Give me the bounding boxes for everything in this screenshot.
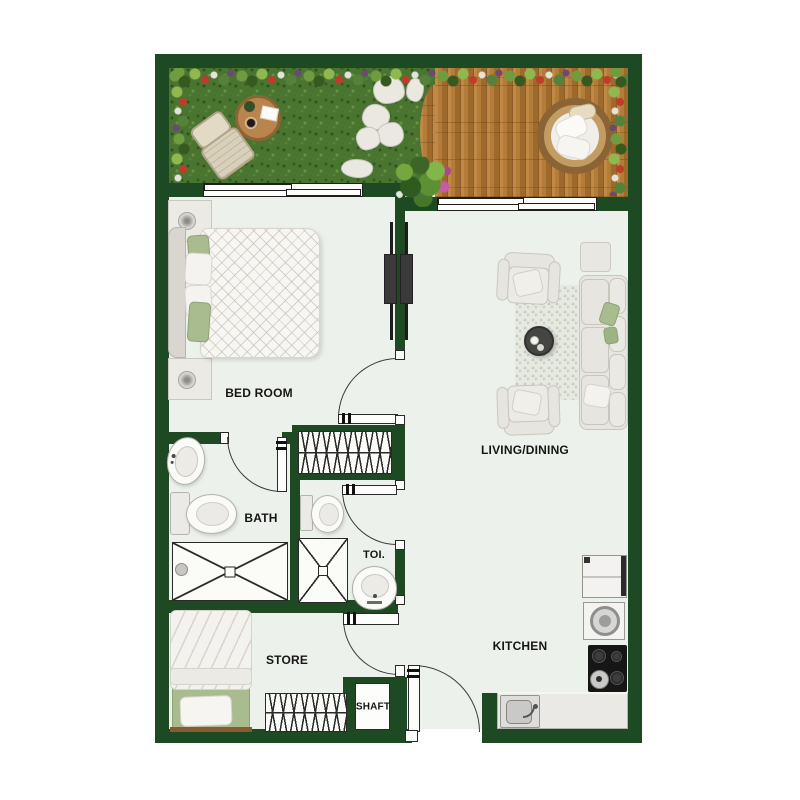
living-window bbox=[437, 197, 597, 211]
coffee-table-cup bbox=[537, 344, 544, 351]
nightstand bbox=[168, 358, 212, 400]
wall-cap bbox=[395, 540, 405, 550]
door-hinge-tick bbox=[346, 484, 349, 495]
sink-tap bbox=[373, 594, 377, 598]
wall-outer-left bbox=[155, 54, 169, 743]
store-bed bbox=[170, 610, 252, 732]
bath-shower-tray bbox=[172, 542, 288, 601]
double-bed-duvet bbox=[200, 228, 320, 358]
store-door-leaf bbox=[343, 613, 399, 625]
flower-border-top bbox=[169, 66, 628, 88]
armchair bbox=[496, 251, 562, 309]
wall-outer-top bbox=[155, 54, 642, 68]
door-hinge-tick bbox=[353, 612, 356, 625]
coffee-table bbox=[524, 326, 554, 356]
toi-toilet-bowl bbox=[311, 495, 344, 533]
shower-drain bbox=[225, 566, 236, 577]
sink-tap bbox=[367, 601, 382, 604]
refrigerator-divider bbox=[583, 576, 621, 578]
burner bbox=[611, 651, 622, 662]
wall-cap bbox=[395, 415, 405, 425]
stepping-stone bbox=[377, 122, 404, 147]
bath-door-leaf bbox=[277, 437, 287, 492]
door-hinge-tick bbox=[352, 484, 355, 495]
toi-shower-tray bbox=[298, 538, 348, 603]
sofa bbox=[579, 275, 628, 430]
store-bed-base bbox=[170, 727, 252, 732]
store-wardrobe bbox=[265, 693, 347, 732]
side-table bbox=[580, 242, 611, 272]
refrigerator-handle bbox=[621, 556, 626, 596]
bath-toilet-bowl bbox=[186, 494, 237, 534]
armchair-arm bbox=[547, 385, 560, 427]
refrigerator-hinge bbox=[584, 557, 590, 563]
door-hinge-tick bbox=[407, 669, 420, 672]
wall-cap bbox=[405, 730, 418, 742]
sliding-panel bbox=[400, 254, 413, 304]
cooktop bbox=[588, 645, 627, 692]
door-hinge-tick bbox=[347, 612, 350, 625]
wall-cap bbox=[395, 665, 405, 677]
room-label-bedroom: BED ROOM bbox=[225, 386, 293, 400]
basket-chair bbox=[537, 98, 613, 174]
room-label-kitchen: KITCHEN bbox=[493, 639, 548, 653]
basin-bowl bbox=[173, 444, 201, 478]
bed-pillow-white bbox=[184, 252, 213, 285]
room-label-bath: BATH bbox=[244, 511, 277, 525]
kettle bbox=[590, 670, 609, 689]
store-bed-fold bbox=[170, 668, 252, 685]
wall-cap bbox=[395, 595, 405, 605]
bedroom-door-leaf bbox=[338, 414, 398, 424]
table-lamp bbox=[178, 371, 196, 389]
sliding-panel bbox=[384, 254, 397, 304]
sofa-back-cushion bbox=[609, 392, 626, 427]
bedroom-window bbox=[203, 183, 363, 197]
armchair-arm bbox=[547, 261, 561, 304]
bed-pillow-green bbox=[187, 301, 212, 342]
refrigerator bbox=[582, 555, 627, 598]
window-sash bbox=[204, 184, 292, 191]
basin-tap bbox=[170, 461, 173, 464]
shower-head bbox=[175, 563, 188, 576]
toilet-door-leaf bbox=[342, 485, 397, 495]
garden-table-bowl bbox=[244, 101, 255, 112]
wall-garden-divider bbox=[169, 183, 203, 197]
door-hinge-tick bbox=[276, 447, 287, 450]
entrance-door-leaf bbox=[408, 665, 420, 732]
washing-machine bbox=[583, 602, 625, 640]
garden-table-cup bbox=[247, 119, 255, 127]
wall-kitchen-stub bbox=[482, 693, 497, 730]
door-hinge-tick bbox=[348, 413, 351, 424]
wall-garden-divider bbox=[597, 197, 628, 211]
garden-table-napkin bbox=[260, 105, 279, 121]
burner bbox=[610, 671, 624, 685]
flower-border-right bbox=[606, 66, 628, 196]
window-sash bbox=[286, 189, 361, 196]
floor-plan-canvas: BED ROOM LIVING/DINING BATH TOI. STORE S… bbox=[0, 0, 800, 800]
wall-outer-right bbox=[628, 54, 642, 743]
room-label-toilet: TOI. bbox=[363, 549, 385, 561]
shower-drain bbox=[318, 566, 328, 576]
store-bed-pillow bbox=[179, 695, 232, 727]
window-sash bbox=[438, 198, 524, 205]
washing-machine-drum bbox=[599, 615, 611, 627]
wall-cap bbox=[395, 350, 405, 360]
toilet-seat bbox=[196, 502, 229, 526]
burner bbox=[592, 649, 606, 663]
room-label-living-dining: LIVING/DINING bbox=[481, 443, 569, 457]
corridor-wardrobe bbox=[298, 431, 392, 474]
door-hinge-tick bbox=[342, 413, 345, 424]
flower-border-left bbox=[169, 66, 191, 183]
kitchen-sink bbox=[500, 695, 540, 728]
bed-headboard bbox=[168, 227, 186, 358]
room-label-store: STORE bbox=[266, 653, 308, 667]
sofa-pillow-green bbox=[603, 326, 619, 345]
floor-plan: BED ROOM LIVING/DINING BATH TOI. STORE S… bbox=[155, 54, 642, 743]
door-hinge-tick bbox=[407, 675, 420, 678]
kettle-lid bbox=[596, 676, 602, 682]
sofa-pillow-white bbox=[582, 383, 611, 409]
door-hinge-tick bbox=[276, 441, 287, 444]
armchair bbox=[496, 382, 561, 436]
wall-outer-bottom-right bbox=[482, 729, 642, 743]
toilet-seat bbox=[319, 503, 339, 526]
sofa-back-cushion bbox=[609, 354, 626, 390]
toi-sink bbox=[352, 566, 397, 610]
sink-faucet-base bbox=[533, 704, 538, 709]
room-label-shaft: SHAFT bbox=[356, 702, 390, 713]
window-sash bbox=[518, 203, 595, 210]
